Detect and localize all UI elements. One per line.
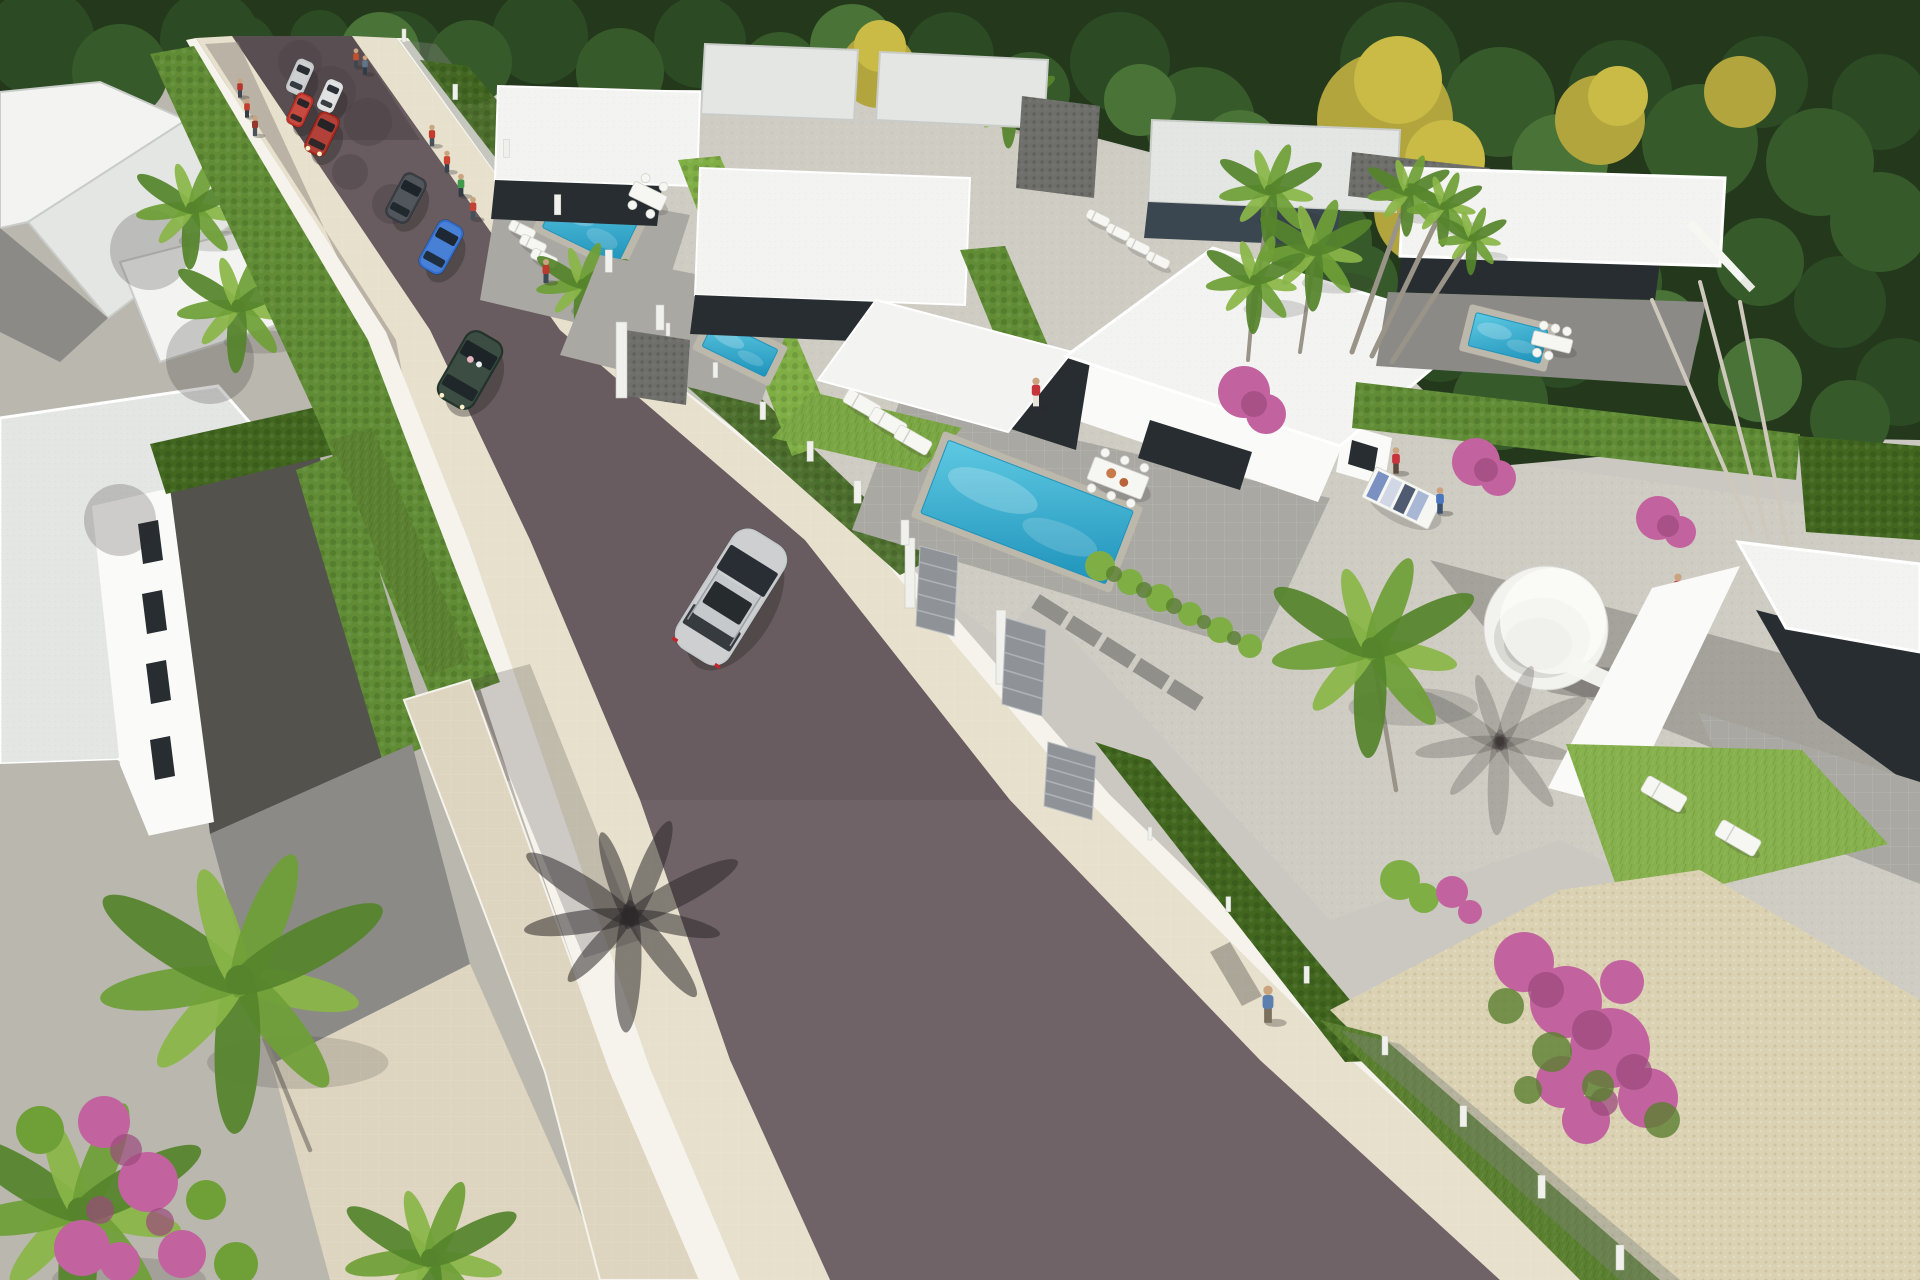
roof-top-1	[701, 44, 858, 120]
gabion-entrance-1	[1016, 96, 1100, 198]
gabion-gate-ab	[621, 330, 690, 405]
villaB-roof	[695, 168, 970, 305]
hedge-right-edge	[1798, 436, 1920, 540]
gabion-gate-post	[616, 322, 627, 398]
scene-render	[0, 0, 1920, 1280]
gate-1	[916, 546, 958, 636]
villaA-roof	[495, 86, 700, 186]
gate-pillar-1	[905, 538, 915, 608]
gate-3	[1044, 742, 1096, 820]
gate-2	[1002, 618, 1046, 716]
aerial-render	[0, 0, 1920, 1280]
